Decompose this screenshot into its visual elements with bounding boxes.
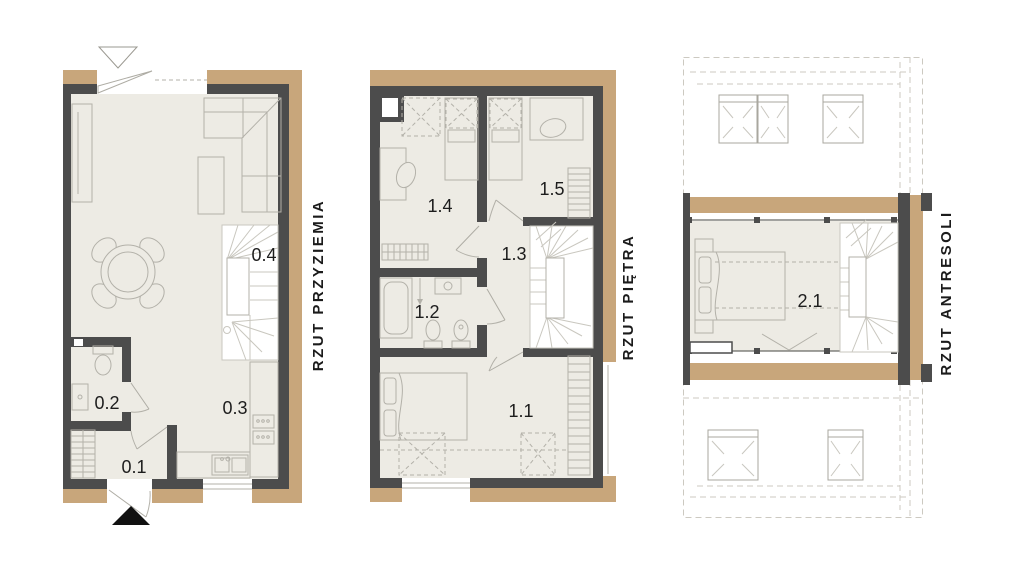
room-label-1-3: 1.3 bbox=[501, 244, 526, 264]
room-label-1-2: 1.2 bbox=[414, 302, 439, 322]
room-label-2-1: 2.1 bbox=[797, 291, 822, 311]
staircase-icon bbox=[840, 220, 898, 352]
mezzanine-plan: 2.1 RZUT ANTRESOLI bbox=[683, 57, 955, 518]
plans-drawing: 0.1 0.2 0.3 0.4 RZUT PRZYZIEMIA bbox=[0, 0, 1024, 576]
floor-plans-sheet: 0.1 0.2 0.3 0.4 RZUT PRZYZIEMIA bbox=[0, 0, 1024, 576]
staircase-icon bbox=[530, 222, 593, 348]
first-floor-plan: 1.1 1.2 1.3 1.4 1.5 RZUT PIĘTRA bbox=[370, 70, 637, 502]
plan-title-ground: RZUT PRZYZIEMIA bbox=[310, 199, 327, 372]
room-label-1-5: 1.5 bbox=[539, 179, 564, 199]
room-label-0-4: 0.4 bbox=[251, 245, 276, 265]
secondary-entrance-arrow-icon bbox=[99, 47, 137, 68]
window bbox=[203, 479, 252, 503]
room-label-0-3: 0.3 bbox=[222, 398, 247, 418]
plan-title-mezzanine: RZUT ANTRESOLI bbox=[938, 210, 955, 375]
room-label-0-2: 0.2 bbox=[94, 393, 119, 413]
room-label-1-1: 1.1 bbox=[508, 401, 533, 421]
terrace-door bbox=[97, 70, 207, 94]
ground-floor-plan: 0.1 0.2 0.3 0.4 RZUT PRZYZIEMIA bbox=[63, 47, 327, 525]
plan-title-first-floor: RZUT PIĘTRA bbox=[620, 234, 637, 361]
chimney bbox=[380, 96, 404, 122]
roof-window-icon bbox=[828, 430, 863, 480]
room-label-1-4: 1.4 bbox=[427, 196, 452, 216]
roof-window-icon bbox=[719, 95, 757, 143]
balustrade-panel bbox=[690, 342, 732, 353]
roof-window-icon bbox=[708, 430, 758, 480]
room-label-0-1: 0.1 bbox=[121, 457, 146, 477]
roof-window-icon bbox=[823, 95, 863, 143]
roof-window-icon bbox=[758, 95, 788, 143]
window bbox=[402, 478, 470, 502]
